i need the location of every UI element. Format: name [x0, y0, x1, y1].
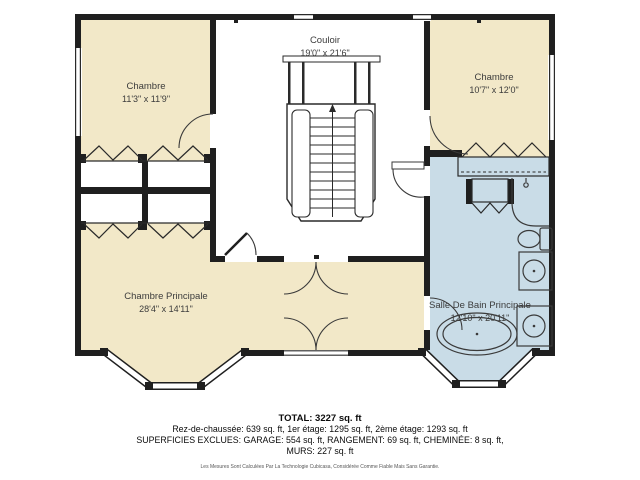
dims-chambre-top-left: 11'3" x 11'9" [122, 94, 170, 104]
floor-plan-drawing: Couloir 19'0" x 21'6" Chambre 11'3" x 11… [0, 0, 640, 412]
disclaimer-text: Les Mesures Sont Calculées Par La Techno… [0, 464, 640, 470]
label-chambre-top-left: Chambre [126, 81, 165, 92]
summary-walls: MURS: 227 sq. ft [0, 446, 640, 457]
window-left-wall [74, 48, 82, 136]
summary-excluded: SUPERFICIES EXCLUES: GARAGE: 554 sq. ft,… [0, 435, 640, 446]
room-chambre-principale-right [216, 262, 424, 350]
dims-salle-de-bain: 12'10" x 20'11" [451, 313, 510, 323]
label-couloir: Couloir [310, 35, 340, 46]
summary-total: TOTAL: 3227 sq. ft [0, 413, 640, 424]
door-arc-bathroom [393, 169, 424, 197]
dims-chambre-top-right: 10'7" x 12'0" [469, 85, 518, 95]
summary-floors: Rez-de-chaussée: 639 sq. ft, 1er étage: … [0, 424, 640, 435]
label-chambre-principale: Chambre Principale [124, 291, 207, 302]
window-vestibule-bottom [284, 350, 348, 356]
window-right-wall [548, 55, 556, 140]
door-leaf-bathroom [392, 162, 424, 169]
window-top-wall-right [413, 13, 431, 21]
room-chambre-principale-left [81, 223, 216, 350]
dims-couloir: 19'0" x 21'6" [300, 48, 349, 58]
label-salle-de-bain: Salle De Bain Principale [429, 300, 531, 311]
dims-chambre-principale: 28'4" x 14'11" [139, 304, 193, 314]
door-leaf-master [225, 233, 247, 255]
label-chambre-top-right: Chambre [474, 72, 513, 83]
staircase [283, 56, 380, 221]
window-top-wall-center [294, 13, 313, 21]
door-arc-master [247, 233, 256, 255]
floor-plan-page: Couloir 19'0" x 21'6" Chambre 11'3" x 11… [0, 0, 640, 480]
area-summary: TOTAL: 3227 sq. ft Rez-de-chaussée: 639 … [0, 413, 640, 470]
